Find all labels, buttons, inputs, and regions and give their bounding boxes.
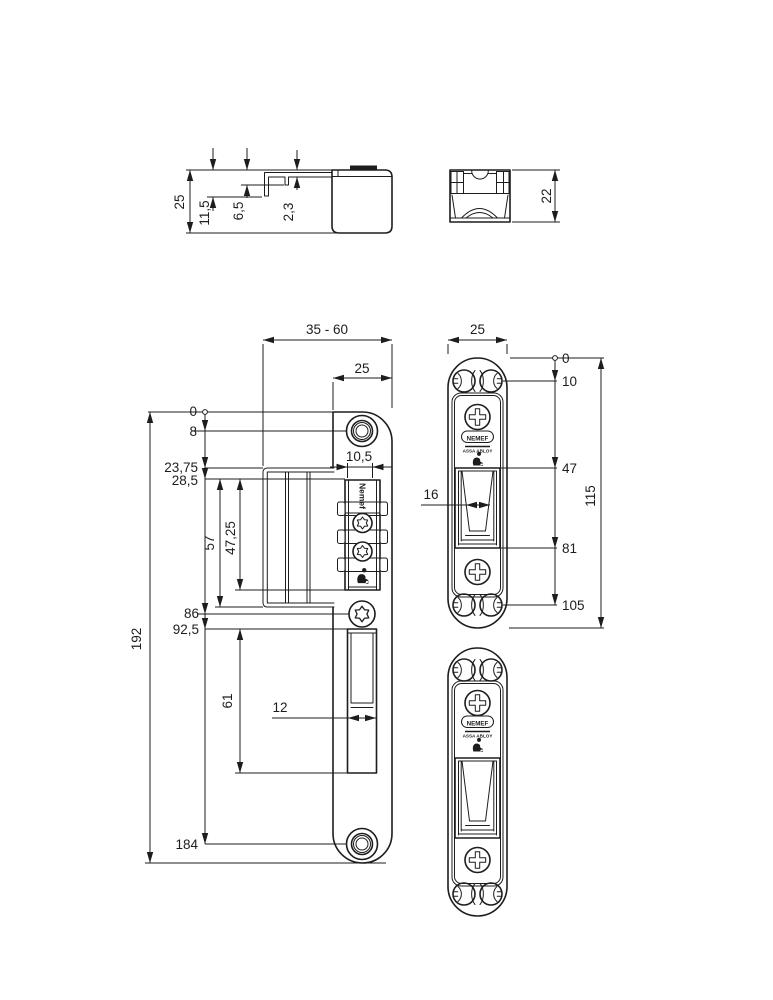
- brand-vertical-label: Nemef: [358, 483, 368, 509]
- dim-slot-top: 10: [562, 374, 577, 389]
- origin-circle-icon: [203, 410, 208, 415]
- dim-top-screw: 8: [189, 424, 197, 439]
- dim-box-span: 47,25: [223, 521, 238, 555]
- dim-side-total-height: 25: [172, 194, 187, 209]
- latch-keeper: [455, 758, 500, 838]
- faceplate-view-dimensioned: NEMEF ASSA ABLOY 25 0 10 16 47 81 105 11…: [421, 322, 604, 628]
- side-tab: [380, 558, 388, 572]
- housing-section-view: 22: [450, 170, 560, 222]
- dim-keeper-bottom: 81: [562, 541, 577, 556]
- side-tab: [380, 530, 388, 544]
- side-profile-view: 25 11,5 6,5 2,3: [172, 148, 392, 233]
- dim-keeper-top: 47: [562, 461, 577, 476]
- dim-lip-bottom: 86: [184, 606, 199, 621]
- torx-screw-icon: [353, 514, 372, 533]
- keeper-edge-strip: [350, 166, 377, 171]
- side-tab: [380, 502, 388, 516]
- dim-box-top: 28,5: [172, 473, 198, 488]
- strike-plate-drawing: 25 11,5 6,5 2,3 22: [0, 0, 773, 1000]
- front-view: Nemef: [129, 322, 392, 863]
- technical-drawing-page: 25 11,5 6,5 2,3 22: [0, 0, 773, 1000]
- dim-pocket-width: 12: [272, 700, 287, 715]
- nemef-logo-text: NEMEF: [467, 436, 489, 443]
- deadbolt-pocket: [348, 629, 377, 773]
- dim-lip-span: 57: [202, 535, 217, 550]
- terminal-box: Nemef: [338, 480, 388, 590]
- dim-plate-origin: 0: [562, 351, 570, 366]
- side-tab: [338, 558, 346, 572]
- latch-keeper: [455, 468, 500, 548]
- lip-profile-outline: [265, 173, 333, 197]
- dim-side-mid-step: 6,5: [231, 202, 246, 221]
- dim-side-lip-offset: 2,3: [281, 203, 296, 222]
- torx-screw-icon: [349, 601, 375, 627]
- strike-body-outline: [332, 170, 392, 233]
- phillips-screw-icon: [465, 560, 490, 585]
- dim-bottom-screw: 184: [175, 837, 198, 852]
- dim-keeper-width: 16: [423, 487, 438, 502]
- phillips-screw-icon: [465, 405, 490, 430]
- origin-circle-icon: [553, 356, 558, 361]
- faceplate-view-plain: NEMEF ASSA ABLOY: [448, 648, 507, 916]
- dim-pocket-top: 92,5: [173, 622, 199, 637]
- dim-terminal-width: 10,5: [346, 449, 372, 464]
- dim-origin: 0: [189, 404, 197, 419]
- side-tab: [338, 502, 346, 516]
- phillips-screw-icon: [465, 848, 490, 873]
- phillips-screw-icon: [465, 691, 490, 716]
- dim-side-lip-depth: 11,5: [197, 200, 212, 225]
- dim-slot-bottom: 105: [562, 598, 585, 613]
- dim-backset-range: 35 - 60: [306, 322, 348, 337]
- dim-housing-height: 22: [539, 188, 554, 203]
- nemef-logo-text: NEMEF: [467, 721, 489, 728]
- dim-plate-total-length: 115: [583, 485, 598, 507]
- dim-head-width: 25: [354, 361, 369, 376]
- side-tab: [338, 530, 346, 544]
- dim-total-length: 192: [129, 628, 144, 651]
- torx-screw-icon: [353, 542, 372, 561]
- dim-pocket-span: 61: [220, 693, 235, 708]
- adjustable-lip: [263, 468, 334, 607]
- assa-abloy-text: ASSA ABLOY: [463, 734, 493, 739]
- dim-plate-width: 25: [470, 322, 485, 337]
